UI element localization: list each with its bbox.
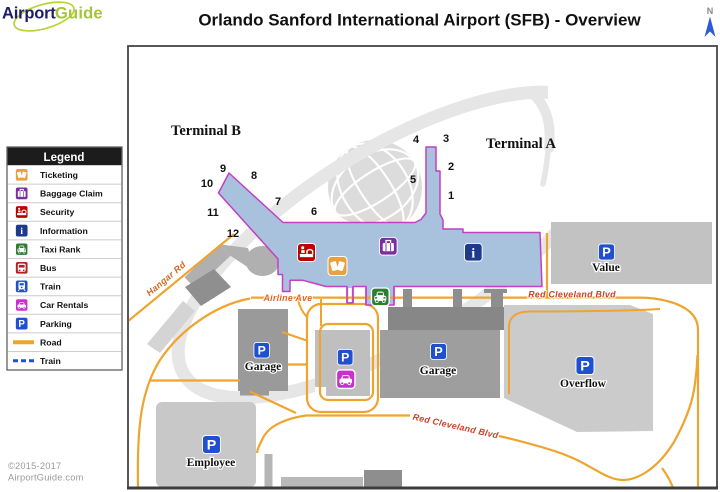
- svg-text:9: 9: [220, 163, 226, 175]
- svg-text:Overflow: Overflow: [560, 378, 607, 390]
- svg-text:11: 11: [207, 207, 219, 219]
- svg-text:Taxi Rank: Taxi Rank: [40, 244, 81, 254]
- svg-text:8: 8: [251, 170, 257, 182]
- svg-text:Terminal A: Terminal A: [486, 136, 556, 152]
- svg-text:Bus: Bus: [40, 263, 57, 273]
- svg-text:Parking: Parking: [40, 319, 72, 329]
- svg-text:Red Cleveland Blvd: Red Cleveland Blvd: [528, 290, 616, 300]
- svg-text:12: 12: [227, 228, 239, 240]
- svg-text:Ticketing: Ticketing: [40, 170, 78, 180]
- svg-text:Garage: Garage: [420, 365, 456, 377]
- svg-text:6: 6: [311, 206, 317, 218]
- svg-text:Security: Security: [40, 207, 74, 217]
- svg-text:Airport: Airport: [2, 5, 56, 23]
- svg-text:Baggage Claim: Baggage Claim: [40, 189, 103, 199]
- svg-text:Legend: Legend: [44, 152, 85, 164]
- svg-text:5: 5: [410, 174, 416, 186]
- svg-text:Value: Value: [592, 262, 620, 274]
- svg-text:Road: Road: [40, 337, 62, 347]
- svg-text:Car Rentals: Car Rentals: [40, 300, 88, 310]
- svg-text:Train: Train: [40, 282, 61, 292]
- svg-text:10: 10: [201, 178, 213, 190]
- svg-text:Garage: Garage: [245, 361, 281, 373]
- svg-text:Employee: Employee: [187, 457, 236, 469]
- svg-text:Information: Information: [40, 226, 88, 236]
- svg-text:Airline Ave: Airline Ave: [263, 293, 313, 303]
- svg-text:AirportGuide.com: AirportGuide.com: [8, 473, 84, 483]
- svg-text:Terminal B: Terminal B: [171, 123, 241, 139]
- svg-text:N: N: [707, 6, 714, 16]
- svg-text:Guide: Guide: [55, 5, 103, 23]
- svg-text:1: 1: [448, 190, 454, 202]
- svg-text:3: 3: [443, 133, 449, 145]
- svg-text:Orlando Sanford International: Orlando Sanford International Airport (S…: [198, 11, 641, 30]
- svg-text:7: 7: [275, 196, 281, 208]
- svg-text:©2015-2017: ©2015-2017: [8, 461, 61, 471]
- svg-text:Train: Train: [40, 356, 61, 366]
- svg-text:4: 4: [413, 134, 420, 146]
- svg-text:2: 2: [448, 161, 454, 173]
